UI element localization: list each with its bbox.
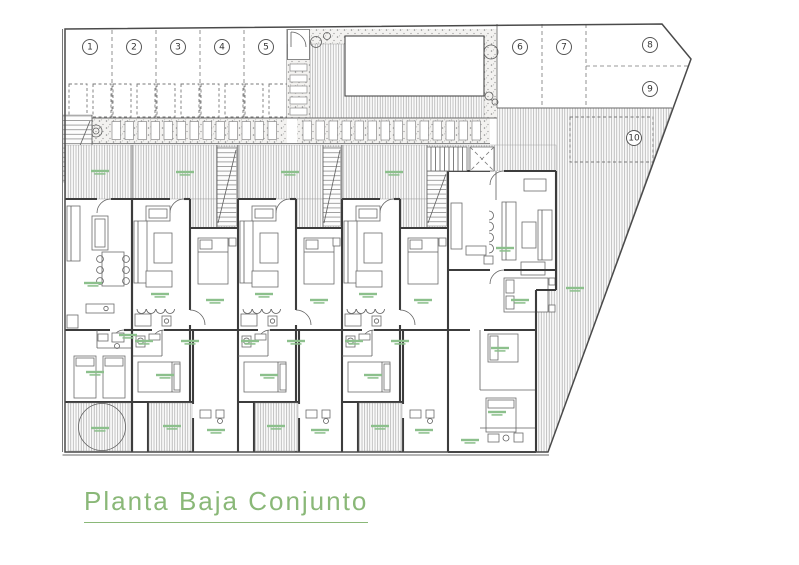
parking-spot-7: 7	[557, 40, 572, 55]
svg-text:4: 4	[219, 43, 225, 53]
svg-text:6: 6	[517, 43, 523, 53]
parking-spot-4: 4	[215, 40, 230, 55]
pool-area	[287, 29, 498, 133]
parking-spot-1: 1	[83, 40, 98, 55]
parking-spot-8: 8	[643, 38, 658, 53]
common-stair-elevator	[427, 147, 494, 171]
floorplan-page: 12345678910 Planta Baja Conjunto	[0, 0, 799, 565]
svg-text:10: 10	[628, 134, 640, 144]
parking-spot-6: 6	[513, 40, 528, 55]
parking-spot-2: 2	[127, 40, 142, 55]
paver-walkway	[65, 118, 497, 144]
plan-title-text: Planta Baja Conjunto	[84, 486, 368, 523]
svg-text:1: 1	[87, 43, 93, 53]
svg-text:8: 8	[647, 41, 653, 51]
townhouse-unit-1	[65, 199, 132, 452]
parking-spot-3: 3	[171, 40, 186, 55]
plan-title: Planta Baja Conjunto	[84, 486, 368, 523]
parking-spot-9: 9	[643, 82, 658, 97]
svg-text:7: 7	[561, 43, 567, 53]
floor-plan-drawing: 12345678910	[0, 0, 799, 565]
svg-text:9: 9	[647, 85, 653, 95]
svg-text:3: 3	[175, 43, 181, 53]
parking-spot-5: 5	[259, 40, 274, 55]
svg-text:5: 5	[263, 43, 269, 53]
parking-spot-10: 10	[627, 131, 642, 146]
svg-text:2: 2	[131, 43, 137, 53]
